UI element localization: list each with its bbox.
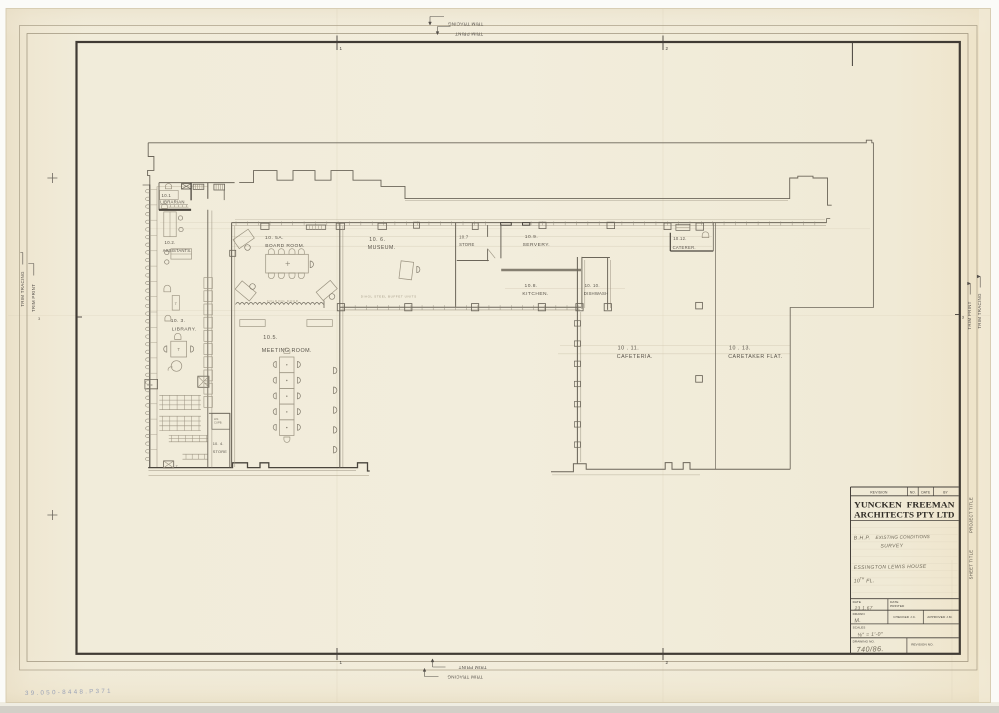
svg-text:10.12.: 10.12. — [673, 236, 686, 241]
svg-text:BOARD ROOM.: BOARD ROOM. — [265, 243, 305, 249]
svg-text:FL.: FL. — [866, 578, 875, 584]
svg-text:10 . 13.: 10 . 13. — [729, 345, 751, 351]
svg-text:PRINTED: PRINTED — [890, 604, 905, 608]
svg-text:TRIM PRINT: TRIM PRINT — [455, 32, 483, 37]
svg-text:KITCHEN.: KITCHEN. — [522, 291, 548, 297]
svg-text:STORE: STORE — [213, 449, 228, 454]
svg-text:DRAWN: DRAWN — [853, 612, 865, 616]
svg-text:TRIM PRINT: TRIM PRINT — [967, 301, 972, 329]
svg-text:10.5.: 10.5. — [263, 335, 278, 341]
svg-text:MUSEUM.: MUSEUM. — [368, 245, 396, 251]
svg-text:10. 5A.: 10. 5A. — [265, 235, 284, 241]
svg-text:10. 6.: 10. 6. — [369, 237, 385, 243]
svg-text:NO.: NO. — [910, 490, 916, 494]
svg-text:10.1: 10.1 — [162, 193, 172, 198]
svg-text:ARCHITECTS PTY LTD: ARCHITECTS PTY LTD — [854, 511, 955, 520]
svg-text:PROJECT TITLE: PROJECT TITLE — [969, 497, 974, 533]
svg-text:YUNCKEN FREEMAN: YUNCKEN FREEMAN — [854, 501, 955, 510]
svg-text:TRIM TRACING: TRIM TRACING — [20, 271, 25, 307]
svg-text:TRIM PRINT: TRIM PRINT — [458, 665, 486, 670]
svg-text:REVISION NO.: REVISION NO. — [911, 643, 933, 647]
svg-text:10.2.: 10.2. — [165, 240, 176, 245]
svg-text:CARETAKER FLAT.: CARETAKER FLAT. — [728, 354, 782, 360]
svg-text:OFF: OFF — [147, 383, 153, 387]
svg-text:B.H.P.: B.H.P. — [854, 535, 871, 541]
svg-text:Y: Y — [176, 464, 178, 468]
svg-text:CATERER.: CATERER. — [673, 245, 696, 250]
svg-text:LIBRARIAN: LIBRARIAN — [160, 200, 185, 205]
svg-text:CUPB.: CUPB. — [214, 421, 223, 425]
svg-text:740/86.: 740/86. — [856, 644, 884, 654]
svg-text:TH: TH — [860, 576, 865, 580]
svg-text:10.8.: 10.8. — [525, 283, 538, 289]
svg-text:CAFETERIA.: CAFETERIA. — [617, 354, 653, 360]
svg-text:DIAGL STEEL BUFFET UNITS: DIAGL STEEL BUFFET UNITS — [361, 295, 417, 299]
svg-text:ESSINGTON LEWIS HOUSE: ESSINGTON LEWIS HOUSE — [854, 564, 927, 571]
svg-text:TRIM TRACING: TRIM TRACING — [448, 22, 484, 27]
svg-text:T: T — [177, 347, 180, 352]
svg-text:LIN.: LIN. — [214, 417, 219, 421]
svg-text:10. 3.: 10. 3. — [171, 318, 186, 324]
svg-text:DATE: DATE — [921, 490, 931, 494]
svg-text:10. 4.: 10. 4. — [213, 441, 224, 446]
svg-text:ASSISTANTS.: ASSISTANTS. — [163, 248, 192, 253]
svg-text:BY: BY — [943, 490, 948, 494]
svg-text:DRAWING NO.: DRAWING NO. — [853, 640, 875, 644]
svg-text:SURVEY: SURVEY — [880, 543, 903, 549]
svg-text:FOLDING DOOR: FOLDING DOOR — [267, 299, 299, 303]
svg-text:TRIM PRINT: TRIM PRINT — [31, 284, 36, 312]
svg-text:CHECKED J.C.: CHECKED J.C. — [893, 615, 916, 619]
svg-text:EXISTING CONDITIONS: EXISTING CONDITIONS — [875, 534, 930, 540]
svg-text:SHEET TITLE: SHEET TITLE — [969, 550, 974, 580]
svg-text:TRIM TRACING: TRIM TRACING — [977, 293, 982, 329]
svg-text:10.9.: 10.9. — [525, 234, 538, 240]
svg-text:DATE: DATE — [853, 600, 861, 604]
svg-text:REVISION: REVISION — [870, 490, 888, 494]
svg-text:TRIM TRACING: TRIM TRACING — [447, 675, 483, 680]
svg-text:APPROVED J.M.: APPROVED J.M. — [927, 615, 952, 619]
svg-text:10 . 11.: 10 . 11. — [618, 345, 640, 351]
svg-text:SCALES: SCALES — [853, 626, 866, 630]
svg-text:DISHWASH: DISHWASH — [584, 291, 609, 296]
svg-text:M.: M. — [854, 618, 861, 625]
svg-text:10. 10.: 10. 10. — [585, 283, 600, 288]
svg-text:STORE: STORE — [459, 242, 474, 247]
svg-text:SERVERY.: SERVERY. — [523, 242, 551, 248]
svg-text:10.7: 10.7 — [459, 234, 469, 239]
svg-text:LIBRARY.: LIBRARY. — [172, 327, 197, 333]
